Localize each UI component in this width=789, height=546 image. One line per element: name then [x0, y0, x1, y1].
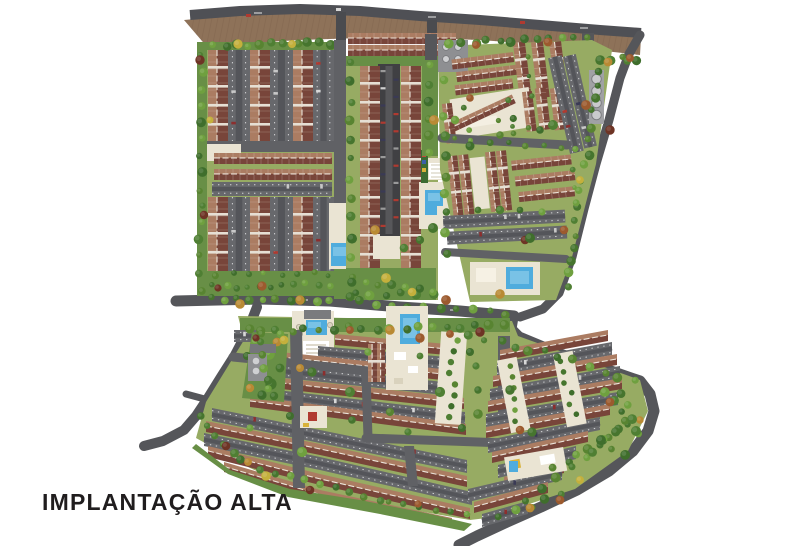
svg-text:IMPLANTAÇÃO ALTA: IMPLANTAÇÃO ALTA — [42, 488, 293, 515]
